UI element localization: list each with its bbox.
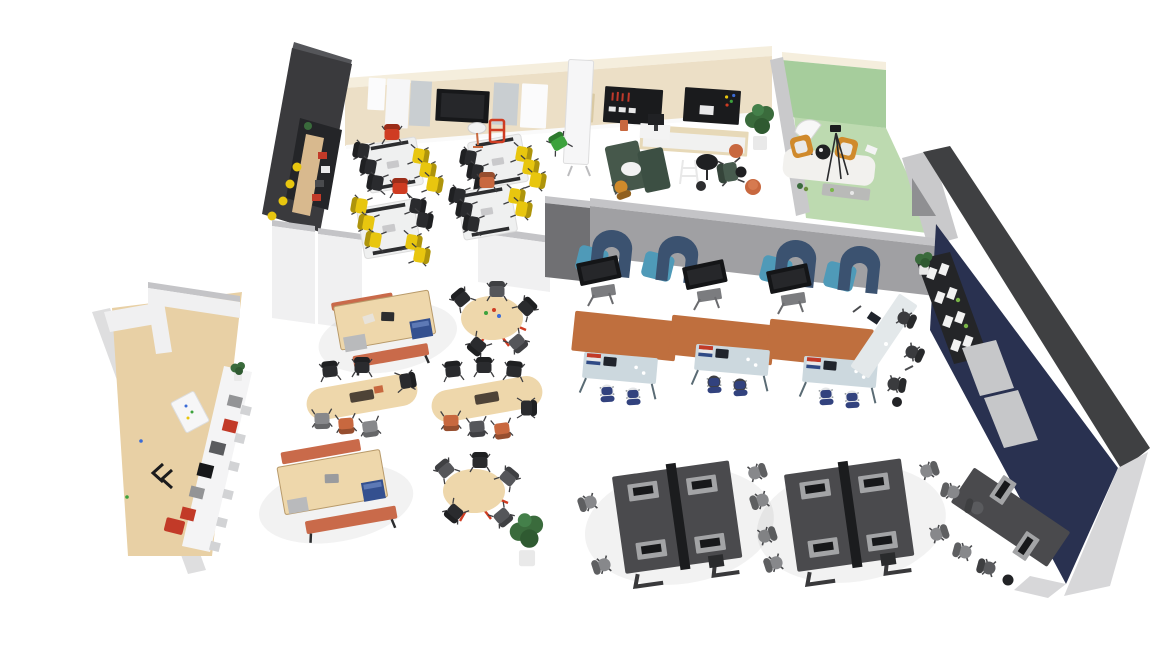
zone-open-office (573, 448, 1070, 597)
blue-task-chair (733, 378, 748, 396)
studio-side-table (816, 145, 831, 160)
gray-task-chair (951, 541, 973, 561)
dark-chair (886, 375, 907, 394)
red-chair (390, 178, 410, 198)
bench-desk-cluster (573, 450, 782, 597)
floorplan-render (0, 0, 1166, 656)
lounge-monitor (648, 114, 664, 125)
black-chair (352, 357, 372, 377)
tv-cart (766, 263, 812, 314)
focus-desk (692, 344, 771, 391)
orange-chair (491, 418, 514, 441)
black-chair (442, 360, 464, 382)
blue-task-chair (600, 384, 615, 402)
tv-cart (576, 255, 622, 306)
cafe-storage-table (249, 431, 420, 555)
orange-pouf (729, 144, 743, 158)
bar-stool (268, 212, 277, 221)
black-chair (319, 360, 341, 382)
dark-chair (903, 342, 927, 364)
blue-task-chair (819, 387, 834, 405)
zone-cafe (249, 281, 545, 566)
bar-stool (279, 197, 288, 206)
bistro-table (696, 154, 718, 191)
floor-plant (510, 513, 543, 566)
black-chair (474, 357, 494, 377)
black-chair (470, 452, 490, 472)
blue-task-chair (626, 387, 641, 405)
blue-task-chair (707, 375, 722, 393)
floorplan-stage (0, 0, 1166, 656)
step-ladder (680, 160, 698, 184)
gray-chair (466, 416, 488, 438)
focus-desk (580, 352, 659, 399)
bar-stool (286, 180, 295, 189)
waste-bin (892, 397, 902, 407)
gray-chair (359, 416, 382, 439)
mobile-flipchart (563, 59, 593, 176)
bar-stool (293, 163, 302, 172)
side-table (736, 167, 747, 178)
zone-coffee-bar (262, 42, 352, 232)
waste-bin (1003, 575, 1014, 586)
tv-cart (682, 259, 728, 310)
bench-desk-cluster (745, 448, 954, 595)
blue-task-chair (845, 390, 860, 408)
gray-task-chair (975, 557, 997, 577)
